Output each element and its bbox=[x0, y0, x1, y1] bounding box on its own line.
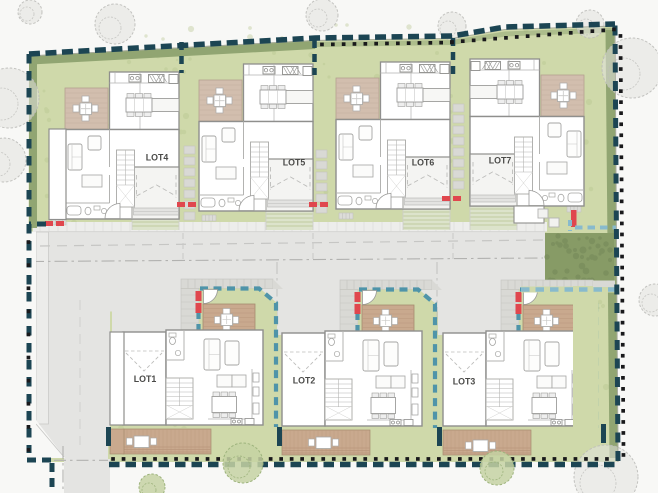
svg-text:LOT3: LOT3 bbox=[453, 377, 476, 387]
svg-text:LOT5: LOT5 bbox=[283, 158, 306, 168]
svg-text:LOT4: LOT4 bbox=[146, 153, 169, 163]
svg-text:LOT6: LOT6 bbox=[412, 158, 435, 168]
svg-text:LOT7: LOT7 bbox=[489, 156, 512, 166]
svg-text:LOT2: LOT2 bbox=[293, 376, 316, 386]
svg-text:LOT1: LOT1 bbox=[134, 374, 157, 384]
